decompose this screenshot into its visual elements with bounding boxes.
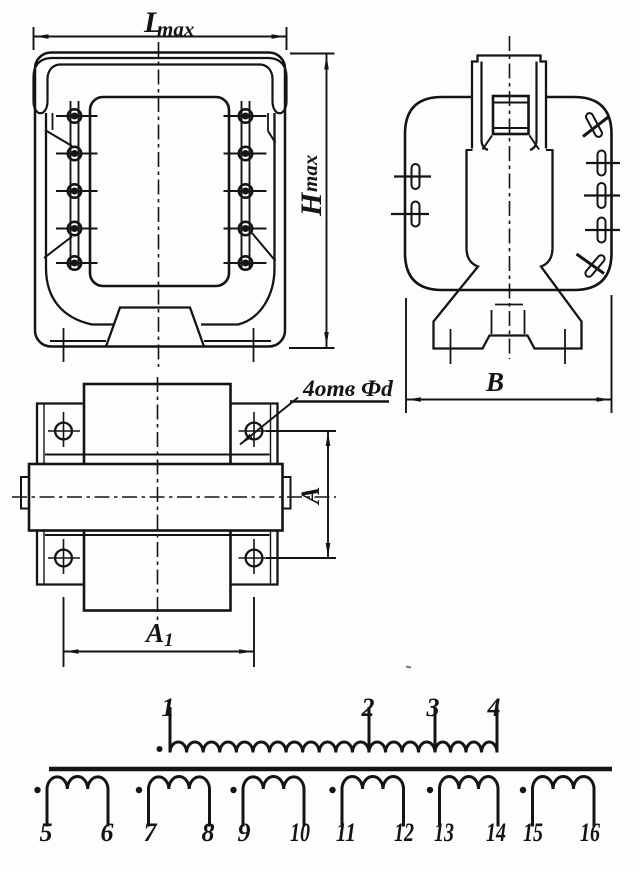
svg-text:A: A	[144, 618, 164, 648]
svg-text:H: H	[295, 191, 328, 217]
svg-text:2: 2	[361, 693, 375, 722]
svg-text:14: 14	[486, 818, 506, 847]
svg-text:9: 9	[238, 818, 251, 847]
svg-text:6: 6	[101, 818, 114, 847]
svg-text:16: 16	[580, 818, 600, 847]
svg-text:13: 13	[434, 818, 454, 847]
svg-text:4отв Фd: 4отв Фd	[302, 376, 394, 402]
svg-text:1: 1	[164, 630, 174, 651]
svg-text:11: 11	[336, 818, 356, 847]
svg-text:5: 5	[40, 818, 53, 847]
svg-text:3: 3	[426, 693, 440, 722]
svg-text:15: 15	[523, 818, 543, 847]
svg-text:max: max	[157, 17, 194, 41]
svg-text:A: A	[296, 487, 325, 506]
svg-text:max: max	[298, 155, 322, 192]
svg-text:В: В	[485, 367, 504, 397]
svg-text:4: 4	[487, 693, 501, 722]
svg-text:7: 7	[144, 818, 158, 847]
svg-text:12: 12	[394, 818, 414, 847]
svg-text:8: 8	[202, 818, 215, 847]
svg-text:10: 10	[290, 818, 310, 847]
svg-text:1: 1	[162, 693, 175, 722]
